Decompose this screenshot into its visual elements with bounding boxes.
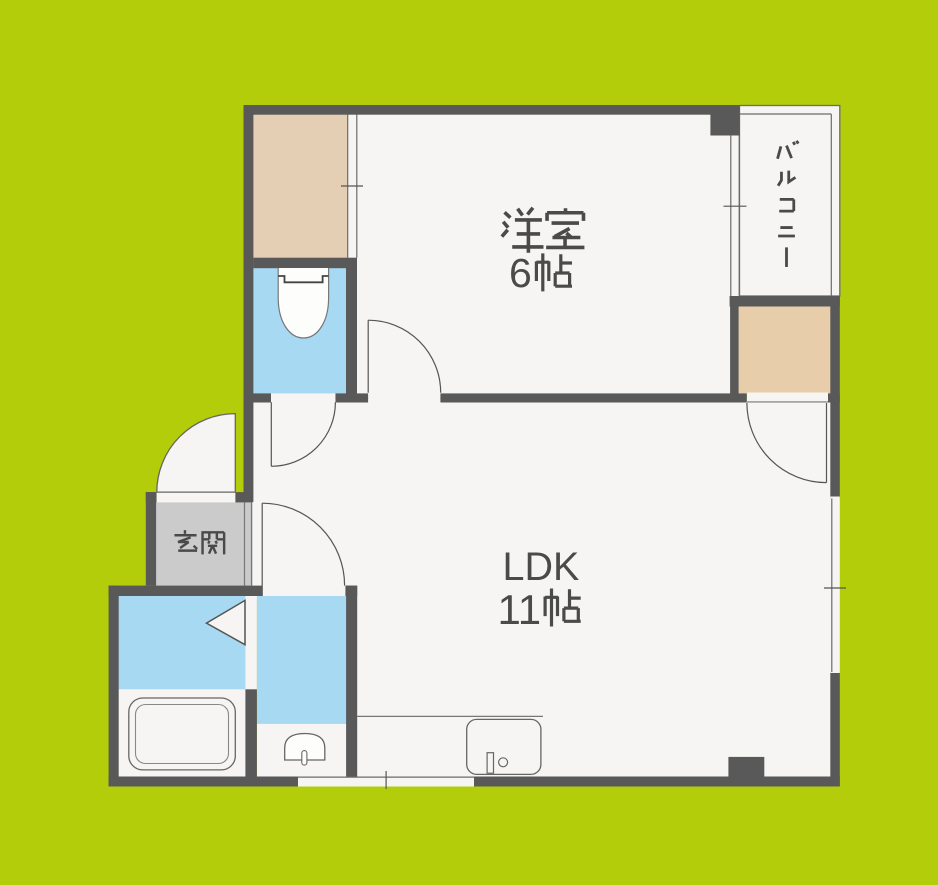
svg-text:11: 11	[498, 586, 542, 633]
svg-text:6: 6	[509, 250, 532, 296]
svg-text:LDK: LDK	[503, 545, 580, 589]
